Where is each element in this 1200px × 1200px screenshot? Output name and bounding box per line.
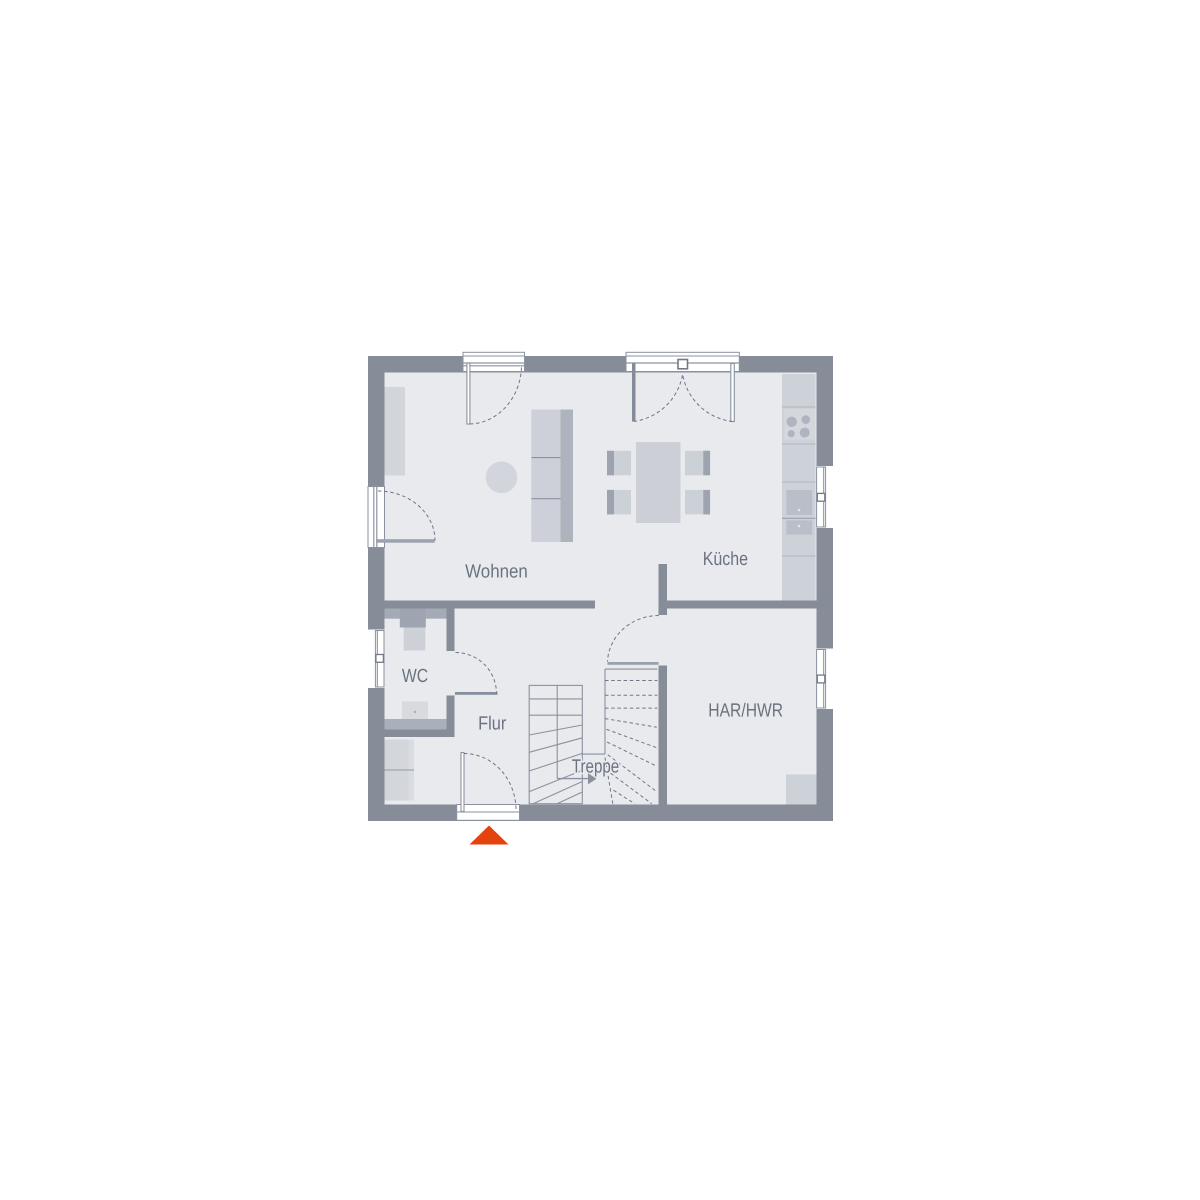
svg-text:HAR/HWR: HAR/HWR [708,701,783,722]
svg-text:Treppe: Treppe [572,757,620,778]
svg-text:Wohnen: Wohnen [465,561,528,582]
svg-text:Flur: Flur [478,714,507,735]
svg-text:WC: WC [402,666,428,687]
svg-text:Küche: Küche [703,549,748,570]
